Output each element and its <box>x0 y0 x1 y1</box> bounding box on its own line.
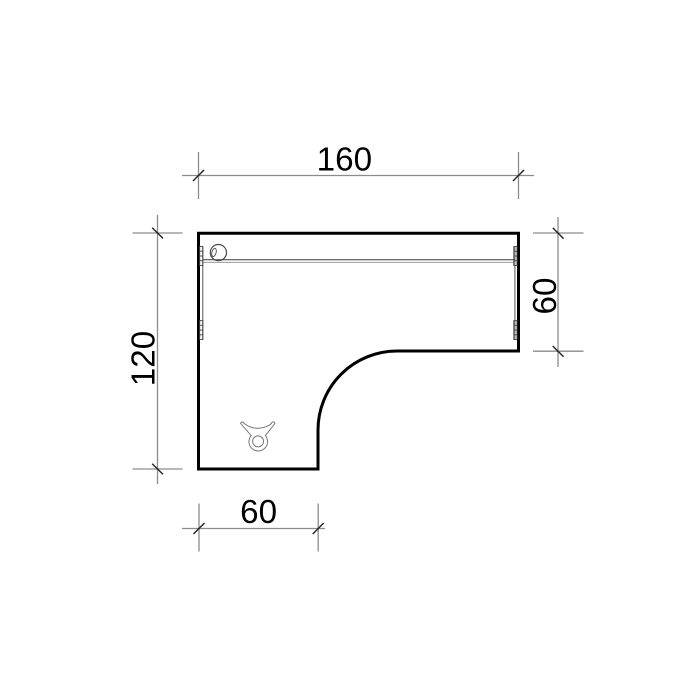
svg-text:60: 60 <box>527 278 564 315</box>
svg-text:160: 160 <box>317 141 372 178</box>
svg-text:60: 60 <box>240 494 277 531</box>
svg-text:120: 120 <box>125 331 162 386</box>
